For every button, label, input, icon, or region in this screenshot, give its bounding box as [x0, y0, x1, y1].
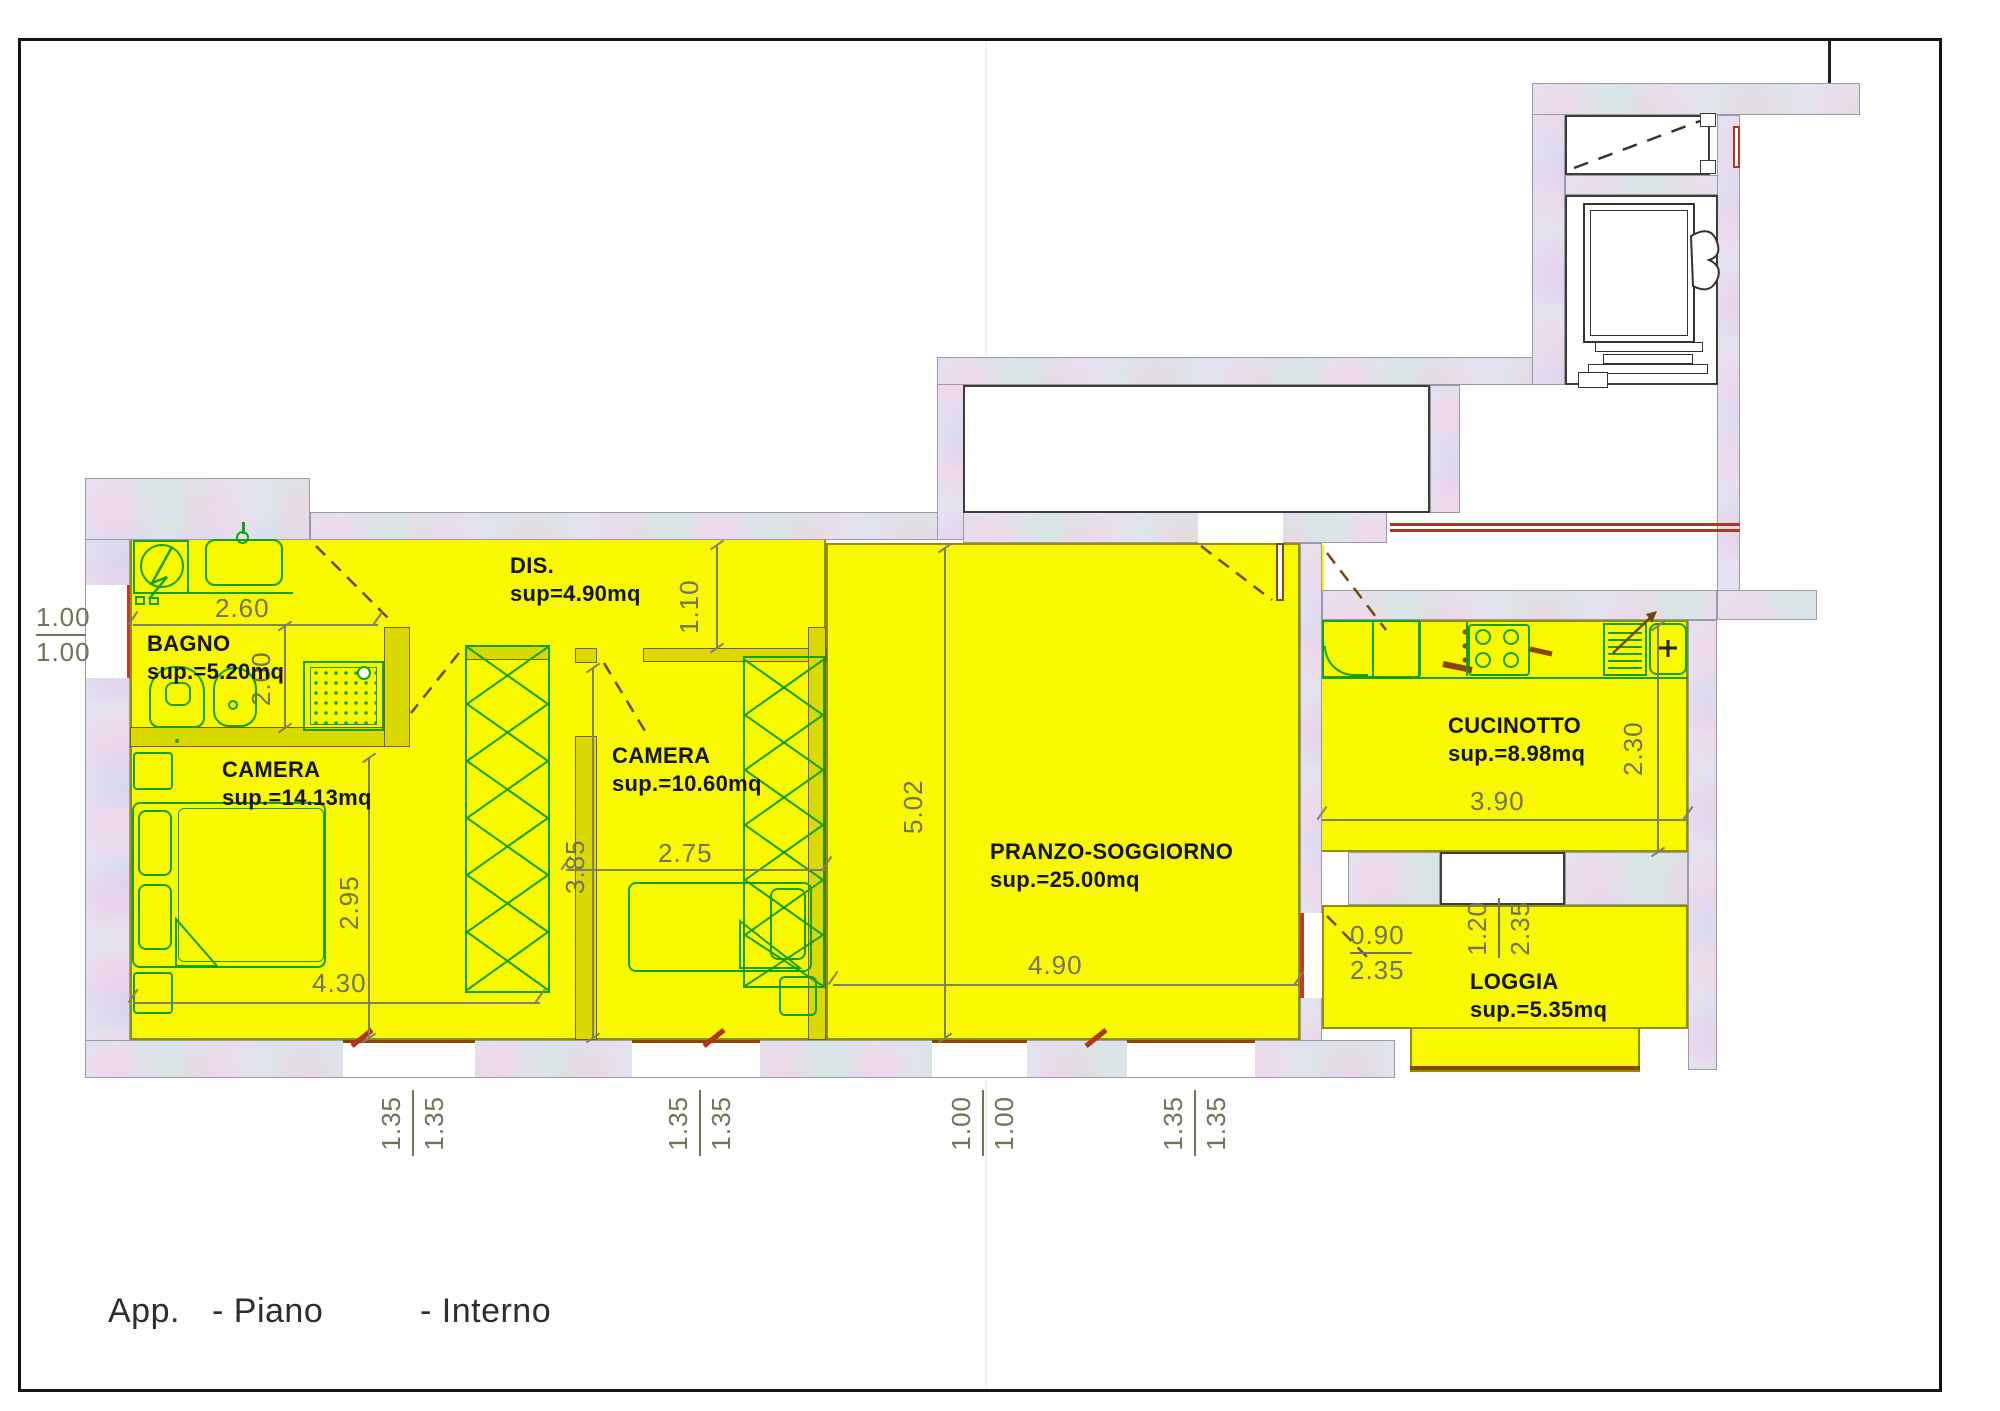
wardrobe1-zigzag-b — [467, 647, 548, 990]
plan-linework-overlay — [0, 0, 2000, 1411]
room-label-camera1: CAMERA sup.=14.13mq — [222, 756, 372, 811]
camera2-door-swing — [604, 663, 645, 731]
room-name: LOGGIA — [1470, 968, 1607, 996]
camera1-door-swing — [411, 653, 459, 713]
bagno-door-swing — [316, 546, 391, 621]
left-window-label: 1.00 1.00 — [36, 602, 86, 668]
fraction-bar — [1350, 952, 1412, 954]
window2-top: 1.35 — [663, 1096, 694, 1151]
dim-camera1-w: 4.30 — [312, 968, 367, 999]
dimline-bagno-h — [284, 626, 286, 728]
room-area: sup.=10.60mq — [612, 770, 762, 798]
dim-camera2-h: 3.85 — [560, 818, 591, 894]
loggia-window-top: 1.20 — [1462, 901, 1493, 956]
room-area: sup.=25.00mq — [990, 866, 1233, 894]
entrance-door-swing — [1201, 546, 1272, 600]
dim-dis-h: 1.10 — [674, 558, 705, 634]
dimline-pranzo-w — [833, 984, 1299, 986]
dim-pranzo-h: 5.02 — [898, 758, 929, 834]
fraction-bar — [1194, 1090, 1196, 1156]
window1-bottom: 1.35 — [419, 1096, 450, 1151]
fraction-bar — [982, 1090, 984, 1156]
window3-bottom: 1.00 — [989, 1096, 1020, 1151]
washing-machine-zigzag — [149, 547, 172, 599]
window3-label: 1.00 1.00 — [946, 1090, 1020, 1156]
window2-label: 1.35 1.35 — [663, 1090, 737, 1156]
window4-bottom: 1.35 — [1201, 1096, 1232, 1151]
kitchen-door-swing — [1327, 553, 1386, 630]
floor-plan-page: 2.60 2.00 1.10 5.02 2.95 4.30 3.85 2.75 … — [0, 0, 2000, 1411]
window1-label: 1.35 1.35 — [376, 1090, 450, 1156]
dimline-pranzo-h — [944, 548, 946, 1038]
loggia-door-bottom: 2.35 — [1350, 955, 1405, 986]
loggia-door-top: 0.90 — [1350, 920, 1405, 951]
bed1-fold — [176, 919, 217, 966]
room-name: BAGNO — [147, 630, 284, 658]
caption-interno: - Interno — [420, 1292, 551, 1331]
dim-cucinotto-w: 3.90 — [1470, 786, 1525, 817]
dimline-dis-h — [716, 545, 718, 648]
room-label-pranzo: PRANZO-SOGGIORNO sup.=25.00mq — [990, 838, 1233, 893]
left-window-top: 1.00 — [36, 602, 91, 633]
dim-cucinotto-h: 2.30 — [1618, 700, 1649, 776]
fraction-bar — [412, 1090, 414, 1156]
radiator-tick-3 — [1086, 1030, 1106, 1046]
room-name: CUCINOTTO — [1448, 712, 1585, 740]
left-window-bottom: 1.00 — [36, 637, 91, 668]
wardrobe2-zigzag-b — [745, 660, 823, 986]
room-area: sup.=5.20mq — [147, 658, 284, 686]
wardrobe2-zigzag-a — [745, 660, 823, 986]
room-label-dis: DIS. sup=4.90mq — [510, 552, 641, 607]
fraction-bar — [699, 1090, 701, 1156]
dimline-bagno-w — [133, 624, 378, 626]
fraction-bar — [1498, 898, 1500, 958]
window2-bottom: 1.35 — [706, 1096, 737, 1151]
room-area: sup=4.90mq — [510, 580, 641, 608]
dimline-camera2-w — [566, 869, 827, 871]
window4-label: 1.35 1.35 — [1158, 1090, 1232, 1156]
room-area: sup.=8.98mq — [1448, 740, 1585, 768]
counter-handle-2 — [1530, 649, 1552, 654]
room-label-cucinotto: CUCINOTTO sup.=8.98mq — [1448, 712, 1585, 767]
dimline-camera1-w — [133, 1002, 540, 1004]
dim-bagno-w: 2.60 — [215, 593, 270, 624]
dim-camera2-w: 2.75 — [658, 838, 713, 869]
wardrobe1-zigzag-a — [467, 647, 548, 990]
room-name: CAMERA — [222, 756, 372, 784]
caption-app: App. — [108, 1292, 180, 1331]
loggia-door-label: 0.90 2.35 — [1350, 920, 1412, 986]
room-label-camera2: CAMERA sup.=10.60mq — [612, 742, 762, 797]
bed2-fold — [740, 921, 800, 968]
radiator-tick-2 — [704, 1030, 724, 1046]
room-area: sup.=14.13mq — [222, 784, 372, 812]
dim-camera1-h: 2.95 — [334, 854, 365, 930]
dimline-cucinotto-h — [1657, 626, 1659, 852]
window1-top: 1.35 — [376, 1096, 407, 1151]
room-name: DIS. — [510, 552, 641, 580]
elevator-door-mechanism — [1691, 231, 1719, 289]
window3-top: 1.00 — [946, 1096, 977, 1151]
room-name: CAMERA — [612, 742, 762, 770]
fraction-bar — [36, 634, 86, 636]
dimline-camera2-h — [592, 668, 594, 1038]
stair-diagonal-dash — [1574, 121, 1700, 168]
room-label-loggia: LOGGIA sup.=5.35mq — [1470, 968, 1607, 1023]
kitchen-faucet-arrow — [1613, 618, 1650, 653]
room-area: sup.=5.35mq — [1470, 996, 1607, 1024]
window4-top: 1.35 — [1158, 1096, 1189, 1151]
room-label-bagno: BAGNO sup.=5.20mq — [147, 630, 284, 685]
dimline-cucinotto-w — [1322, 819, 1688, 821]
loggia-window-label: 1.20 2.35 — [1462, 898, 1536, 958]
room-name: PRANZO-SOGGIORNO — [990, 838, 1233, 866]
loggia-window-bottom: 2.35 — [1505, 901, 1536, 956]
caption-piano: - Piano — [212, 1292, 323, 1331]
dim-pranzo-w: 4.90 — [1028, 950, 1083, 981]
